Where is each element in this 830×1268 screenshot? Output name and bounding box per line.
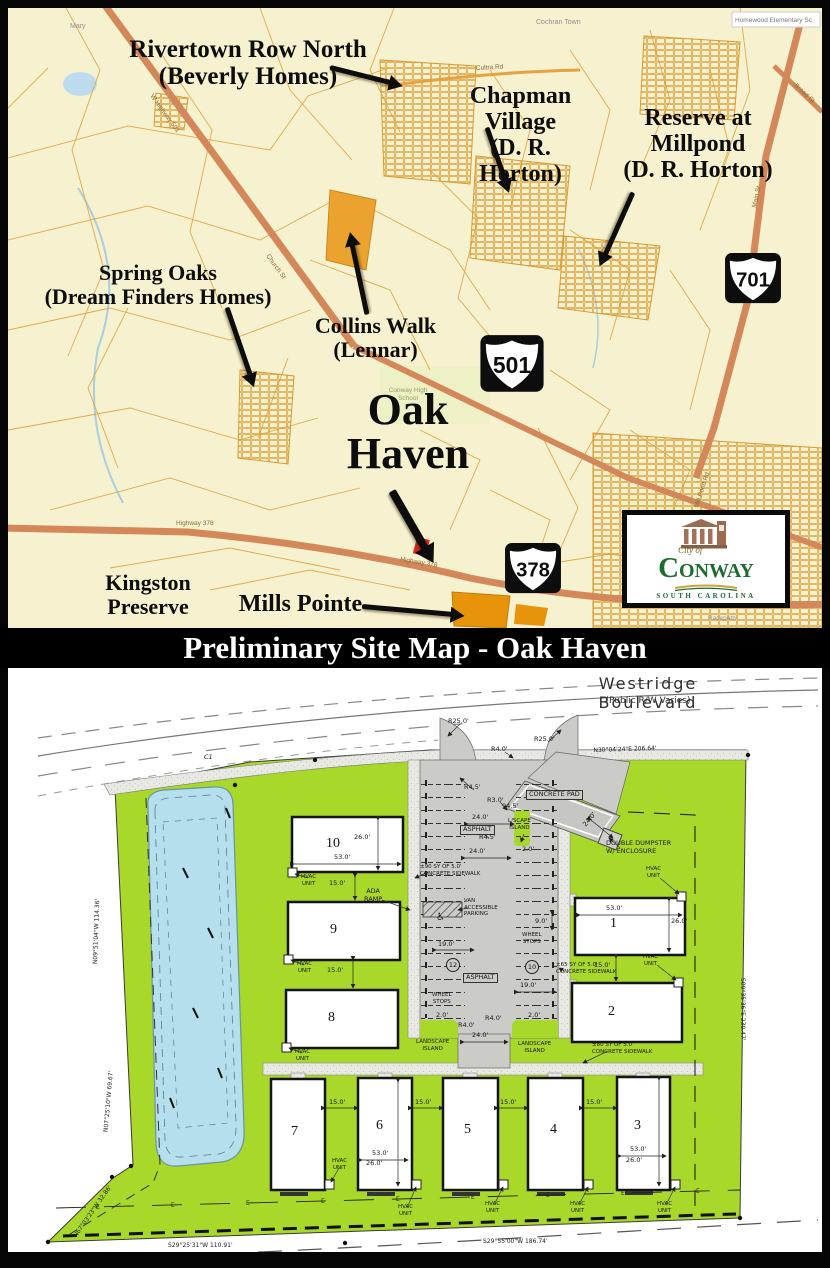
building-2: 2 xyxy=(608,1004,615,1020)
conway-logo: City ofCONWAY SOUTH CAROLINA xyxy=(622,510,790,608)
dim-label: 26.0' xyxy=(366,1160,382,1168)
svg-text:Racepath: Racepath xyxy=(708,615,736,622)
dim-label: 26.0' xyxy=(671,918,687,926)
dim-label: 15.0' xyxy=(586,1099,602,1107)
retention-pond xyxy=(148,787,244,1166)
building-1: 1 xyxy=(610,916,617,932)
label-rivertown: Rivertown Row North (Beverly Homes) xyxy=(118,36,378,90)
dim-label: 15.0' xyxy=(327,967,343,975)
building-5: 5 xyxy=(464,1122,471,1138)
dim-label: R25.0' xyxy=(534,736,555,744)
handicap-symbol: ♿ xyxy=(436,912,445,924)
label-mills-pointe: Mills Pointe xyxy=(233,592,368,618)
dim-label: R4.0' xyxy=(491,746,508,754)
svg-text:Cochran Town: Cochran Town xyxy=(536,19,581,26)
dim-label: R4.0' xyxy=(458,1022,475,1030)
dim-label: R4.0' xyxy=(485,1015,502,1023)
site-plan: EE EE EE EE E xyxy=(8,668,822,1252)
svg-text:E: E xyxy=(171,1202,175,1209)
svg-text:E: E xyxy=(321,1198,325,1205)
ada-ramp-label: ADA RAMP xyxy=(364,888,382,904)
hvac-label: HVAC UNIT xyxy=(332,1158,347,1171)
hvac-label: HVAC UNIT xyxy=(295,1049,310,1062)
page-frame: W Highway 501 Church St Cultra Rd Highwa… xyxy=(0,0,830,1268)
bearing-bottom-right: S29°55'00"W 186.74' xyxy=(483,1238,548,1245)
hvac-label: HVAC UNIT xyxy=(657,1201,672,1214)
dim-label: 15.0' xyxy=(594,962,610,970)
svg-text:501: 501 xyxy=(493,352,531,378)
sidewalk-90-label: ±90 SY OF 5.0' CONCRETE SIDEWALK xyxy=(420,864,480,877)
label-chapman: Chapman Village (D. R. Horton) xyxy=(448,84,593,188)
svg-text:701: 701 xyxy=(736,270,770,292)
dim-label: R25.0' xyxy=(448,718,469,726)
svg-text:Highway 378: Highway 378 xyxy=(176,520,214,527)
building-6: 6 xyxy=(376,1118,383,1134)
sidewalk-80-label: ±80 SY OF 5.0' CONCRETE SIDEWALK xyxy=(592,1042,652,1055)
dim-label: R4.5' xyxy=(479,834,496,842)
vicinity-map: W Highway 501 Church St Cultra Rd Highwa… xyxy=(8,8,822,628)
logo-swoosh xyxy=(671,583,741,591)
svg-text:Mary: Mary xyxy=(70,23,86,30)
stall-count-10: 10 xyxy=(525,960,539,974)
hvac-label: HVAC UNIT xyxy=(570,1201,585,1214)
dumpster-label: DOUBLE DUMPSTER W/ ENCLOSURE xyxy=(606,840,671,856)
us-701-shield: 701 xyxy=(724,252,782,306)
label-kingston: Kingston Preserve xyxy=(68,571,228,619)
hvac-label: HVAC UNIT xyxy=(643,954,658,967)
label-spring-oaks: Spring Oaks (Dream Finders Homes) xyxy=(33,261,283,309)
dim-label: 15.0' xyxy=(329,1099,345,1107)
street-subtitle: (Public R/W Varies) xyxy=(568,696,728,707)
lscape-island-label: L/SCAPE ISLAND xyxy=(508,818,531,831)
svg-text:Cultra Rd: Cultra Rd xyxy=(476,64,504,72)
building-7: 7 xyxy=(291,1124,298,1140)
dim-label: 53.0' xyxy=(334,854,350,862)
building-8: 8 xyxy=(328,1010,335,1026)
dim-label: 53.0' xyxy=(372,1150,388,1158)
svg-text:E: E xyxy=(471,1194,475,1201)
svg-text:E: E xyxy=(696,1188,700,1195)
hvac-label: HVAC UNIT xyxy=(297,961,312,974)
svg-text:E: E xyxy=(621,1190,625,1197)
dim-label: 94.5' xyxy=(502,803,518,811)
bearing-bottom-left: S29°25'31"W 110.91' xyxy=(168,1242,233,1249)
label-oak-haven: Oak Haven xyxy=(318,388,498,476)
site-plan-drawing: EE EE EE EE E xyxy=(8,668,822,1252)
landscape-island-label: LANDSCAPE ISLAND xyxy=(416,1039,449,1052)
svg-text:E: E xyxy=(546,1192,550,1199)
label-reserve: Reserve at Millpond (D. R. Horton) xyxy=(618,106,778,184)
hvac-label: HVAC UNIT xyxy=(485,1201,500,1214)
svg-text:E: E xyxy=(396,1196,400,1203)
dim-label: 19.0' xyxy=(438,941,454,949)
dim-label: 15.0' xyxy=(329,880,345,888)
asphalt-label: ASPHALT xyxy=(463,973,498,983)
dim-label: 26.0' xyxy=(626,1157,642,1165)
hvac-label: HVAC UNIT xyxy=(301,874,316,887)
landscape-island-label: LANDSCAPE ISLAND xyxy=(518,1041,551,1054)
concrete-pad-label: CONCRETE PAD xyxy=(526,790,583,800)
dim-label: 15.0' xyxy=(415,1099,431,1107)
van-parking-label: VAN ACCESSIBLE PARKING xyxy=(464,898,498,918)
svg-text:E: E xyxy=(246,1200,250,1207)
hvac-label: HVAC UNIT xyxy=(398,1204,413,1217)
building-4: 4 xyxy=(550,1122,557,1138)
dim-label: R4.5' xyxy=(464,784,481,792)
dim-label: 53.0' xyxy=(630,1146,646,1154)
dim-label: 15.0' xyxy=(500,1099,516,1107)
parking-stalls-left xyxy=(421,776,465,1022)
label-collins-walk: Collins Walk (Lennar) xyxy=(308,314,443,362)
dim-label: 24.0' xyxy=(469,848,485,856)
banner: Preliminary Site Map - Oak Haven xyxy=(0,628,830,668)
dim-label: 53.0' xyxy=(606,905,622,913)
logo-wordmark: City ofCONWAY xyxy=(658,554,754,583)
us-501-shield: 501 xyxy=(479,334,545,395)
homewood-label: Homewood Elementary Sc xyxy=(735,17,813,24)
stall-count-12: 12 xyxy=(446,958,460,972)
dim-label: 2.0' xyxy=(436,1012,448,1020)
dim-label: 24.0' xyxy=(472,1032,488,1040)
hvac-label: HVAC UNIT xyxy=(646,866,661,879)
banner-title: Preliminary Site Map - Oak Haven xyxy=(183,630,647,666)
us-378-shield: 378 xyxy=(504,542,562,596)
building-9: 9 xyxy=(330,922,337,938)
dim-label: 19.0' xyxy=(520,982,536,990)
dim-label: 24.0' xyxy=(472,814,488,822)
wheel-stops-label: WHEEL STOPS xyxy=(522,932,542,945)
dim-label: 9.0' xyxy=(535,918,547,926)
logo-state: SOUTH CAROLINA xyxy=(656,592,755,600)
dim-label: 26.0' xyxy=(354,834,370,842)
building-10: 10 xyxy=(326,836,340,852)
building-3: 3 xyxy=(634,1118,641,1134)
bearing-right: S09°35'36"E 230.47' xyxy=(739,978,746,1040)
svg-text:378: 378 xyxy=(516,560,550,582)
dim-label: 2.0' xyxy=(522,846,534,854)
logo-cityof: City of xyxy=(678,546,702,555)
wheel-stops-label: WHEEL STOPS xyxy=(432,992,452,1005)
dim-label: 2.0' xyxy=(528,1012,540,1020)
dim-label: C1 xyxy=(204,754,213,762)
